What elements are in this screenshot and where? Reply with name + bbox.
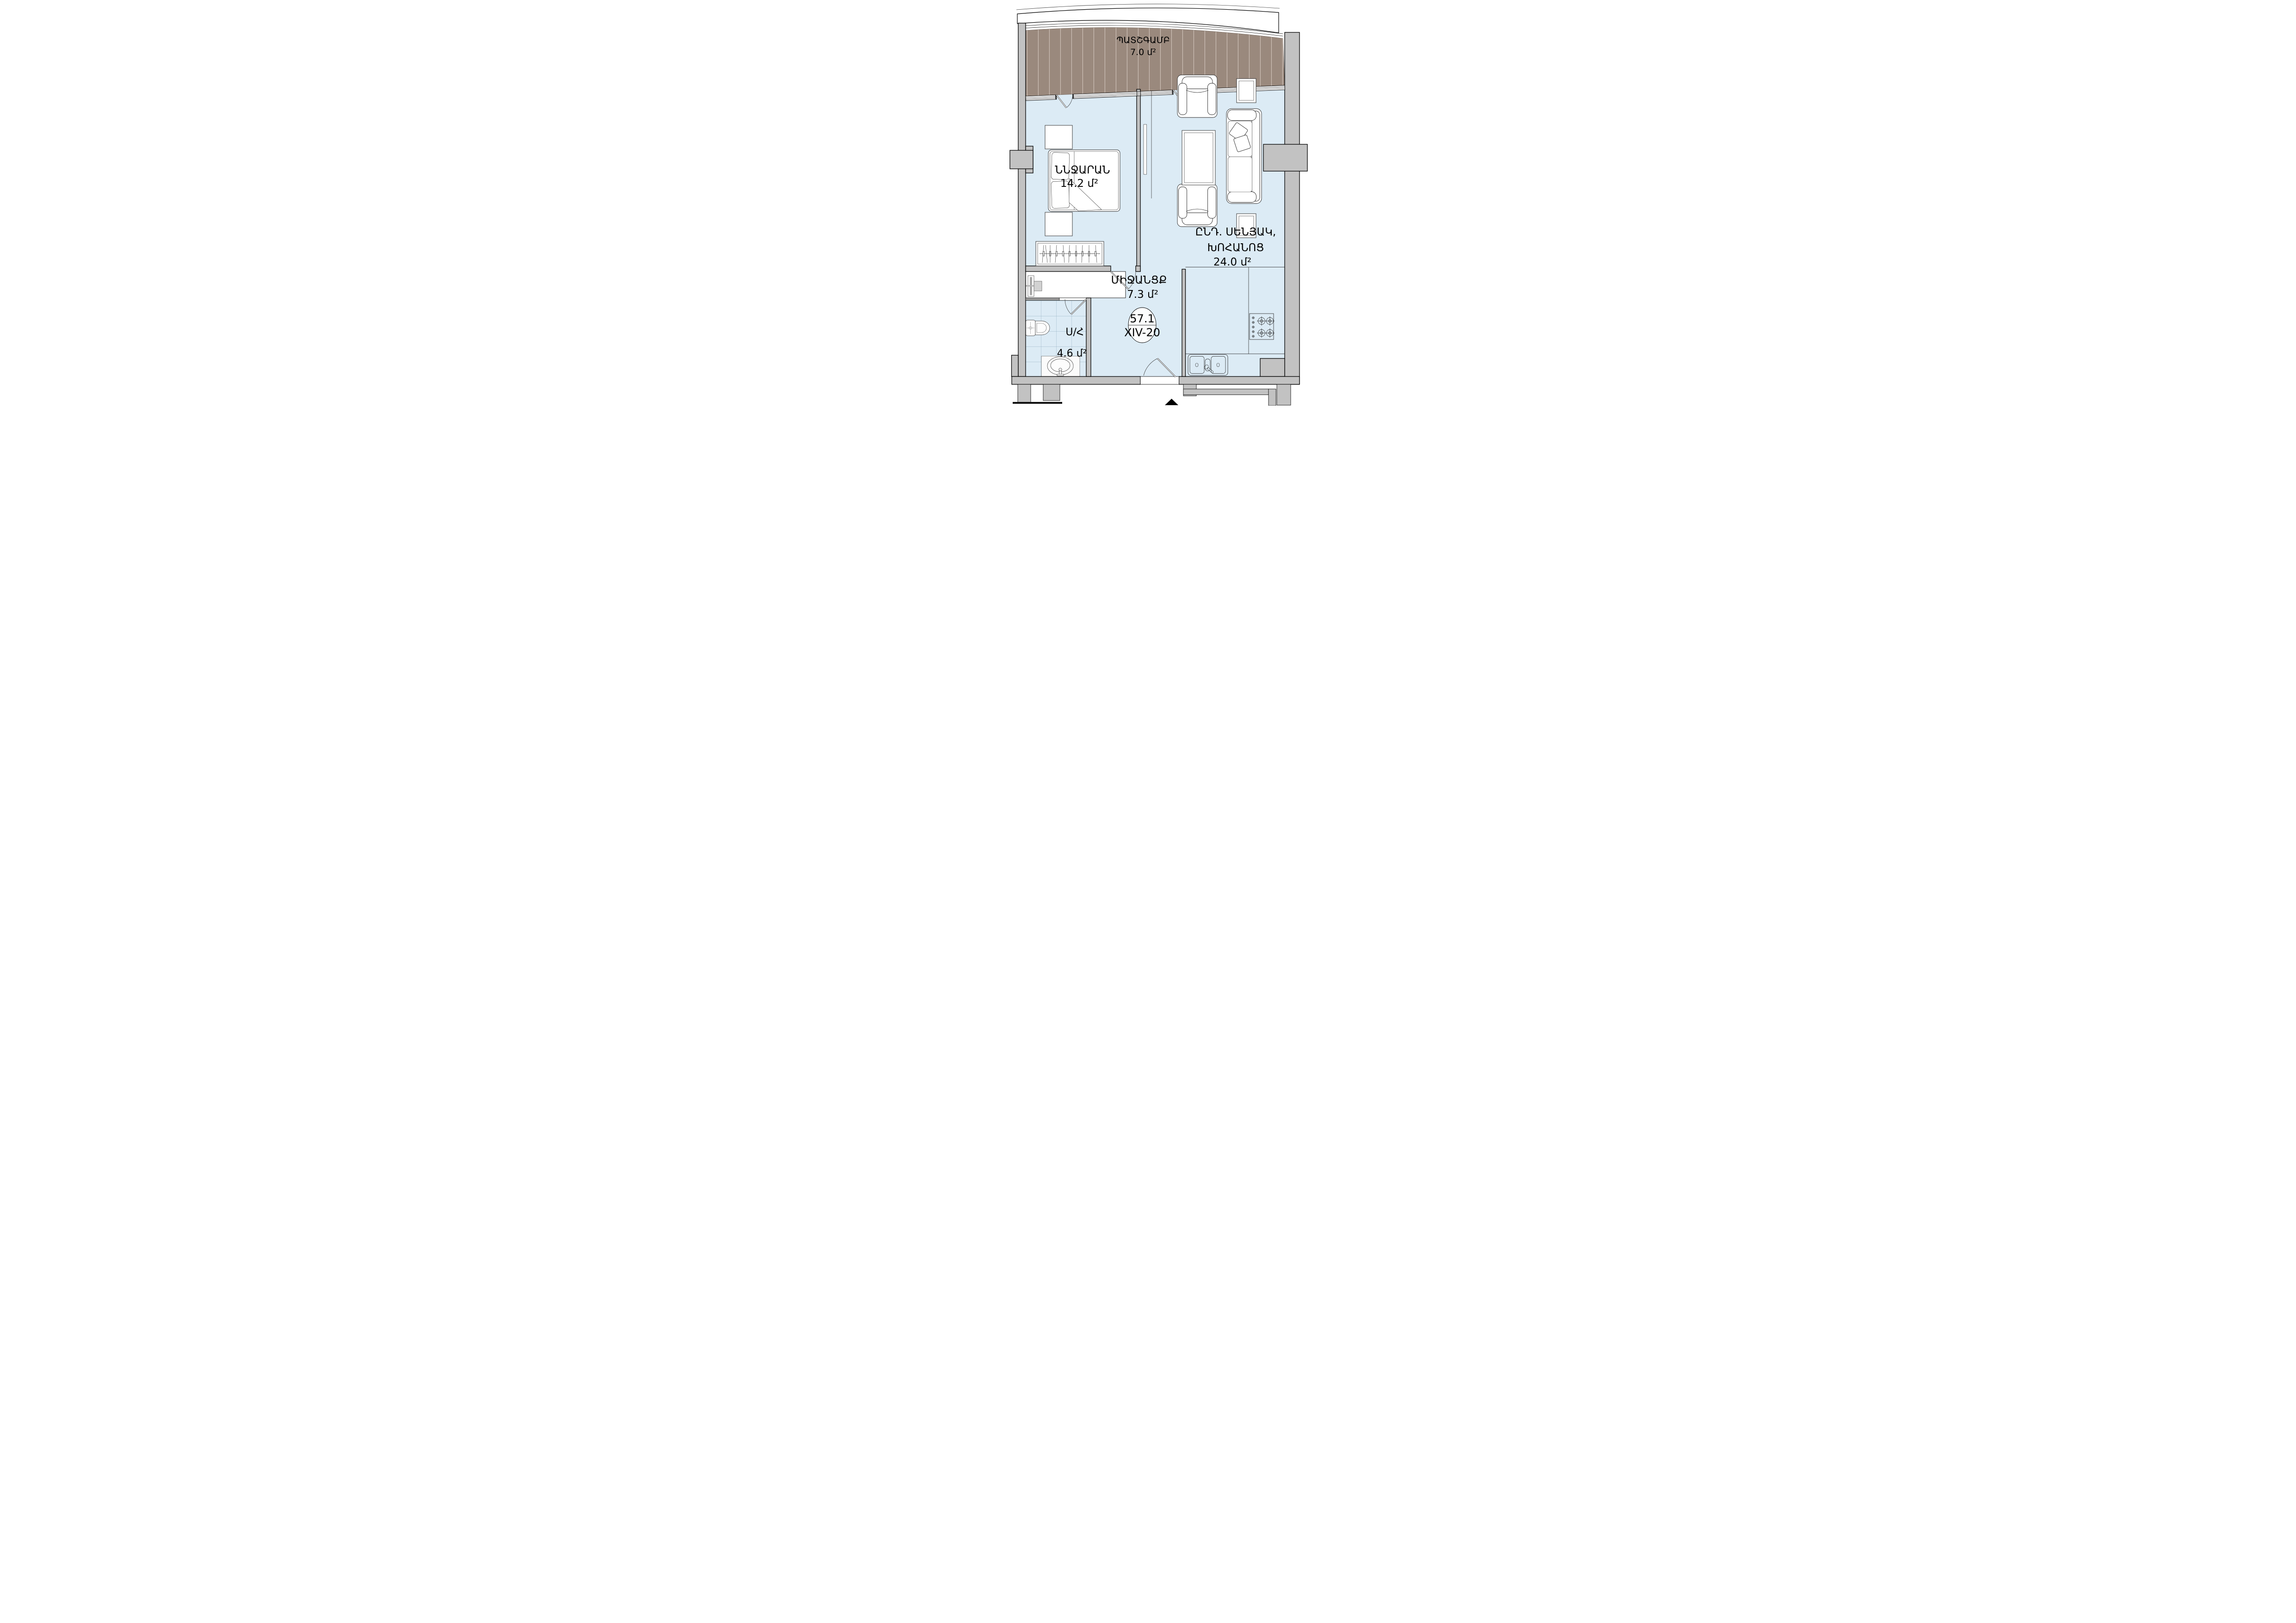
entrance-arrow [1165,399,1178,405]
substructure-left-sill [1013,402,1062,404]
sofa [1226,109,1262,204]
substructure-left-1 [1018,384,1031,403]
balcony-name: ՊԱՏՇԳԱՄԲ [1116,35,1170,45]
wall-bathroom-right [1086,298,1091,376]
substructure-right-column [1269,389,1276,406]
pillar-right [1263,144,1307,171]
wall-corridor-kitchen [1182,269,1186,376]
closet-room [1026,272,1126,298]
pillar-left [1010,150,1033,169]
nightstand-bottom [1045,212,1072,236]
substructure-right-bar [1183,389,1269,395]
armchair-top [1177,75,1217,117]
window-band-partition [1137,92,1140,96]
wardrobe [1036,241,1104,266]
wall-left [1018,23,1026,376]
armchair-bottom [1177,184,1217,227]
toilet [1026,320,1050,336]
wall-bedroom-bottom [1026,266,1111,272]
wall-bathroom-top [1026,298,1059,301]
wall-bottom-right [1179,376,1300,384]
balcony-area: 7.0 մ² [1130,47,1156,57]
wall-bottom-left [1012,376,1140,384]
nightstand-top [1045,125,1072,149]
wall-left-step [1012,355,1019,376]
floor-plan-page: ՊԱՏՇԳԱՄԲ 7.0 մ² ՆՆՋԱՐԱՆ 14.2 մ² ԸՆԴ. ՍԵՆ… [861,0,1435,406]
wall-right [1285,32,1300,384]
living-name-line2: ԽՈՀԱՆՈՑ [1207,242,1264,254]
bathroom-room [1026,301,1086,377]
bathroom-door-sill [1059,298,1086,301]
entrance-sill [1140,376,1179,384]
end-table-top [1237,79,1256,103]
living-area: 24.0 մ² [1213,256,1251,268]
corridor-name: ՄԻՋԱՆՑՔ [1111,274,1167,286]
bedroom-area: 14.2 մ² [1060,178,1098,190]
corridor-area: 7.3 մ² [1127,289,1158,301]
substructure-left-2 [1043,384,1060,401]
bathroom-area: 4.6 մ² [1057,348,1087,359]
wall-bedroom-living [1137,89,1140,272]
bathroom-name: Ս/Հ [1065,327,1083,338]
coffee-table [1182,130,1215,185]
unit-total-area: 57.1 [1130,312,1154,325]
wall-block-bottom-right [1260,358,1285,376]
unit-code: XIV-20 [1124,326,1160,339]
substructure-right-wall [1277,384,1291,405]
bedroom-name: ՆՆՋԱՐԱՆ [1055,164,1110,176]
wall-bedroom-bottom-stub [1136,266,1140,272]
floor-plan: ՊԱՏՇԳԱՄԲ 7.0 մ² ՆՆՋԱՐԱՆ 14.2 մ² ԸՆԴ. ՍԵՆ… [861,0,1435,406]
living-name-line1: ԸՆԴ. ՍԵՆՅԱԿ, [1195,226,1276,238]
